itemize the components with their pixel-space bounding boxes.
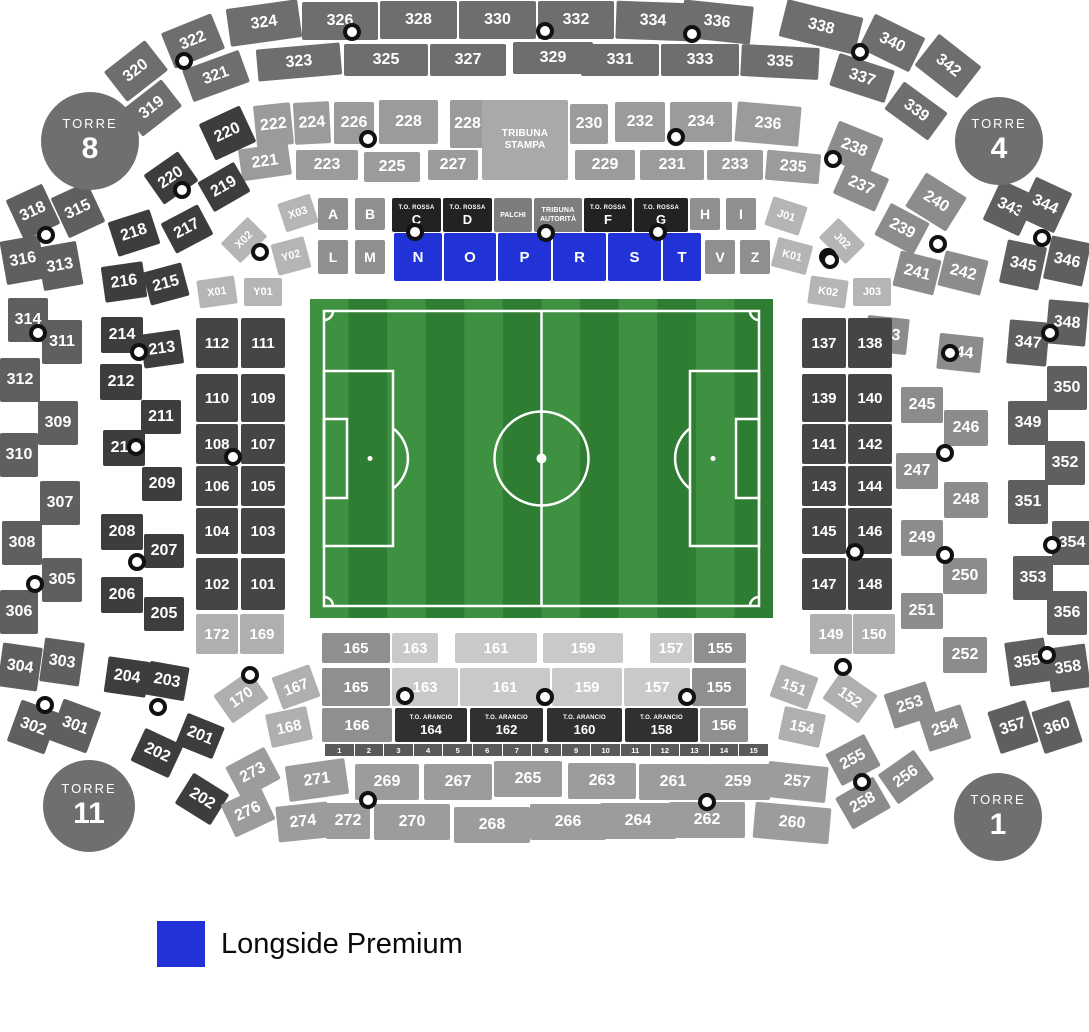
section-205: 205 — [144, 597, 184, 631]
section-202-label: 202 — [142, 740, 173, 766]
gate-marker — [821, 251, 839, 269]
section-y02: Y02 — [270, 236, 311, 276]
section-j01: J01 — [764, 196, 808, 236]
section-306: 306 — [0, 590, 38, 634]
section-211: 211 — [141, 400, 181, 434]
section-k02: K02 — [807, 275, 849, 308]
section-t-o-arancio-162-label: 162 — [496, 723, 518, 736]
section-228: 228 — [379, 100, 438, 144]
row-number-11: 11 — [621, 744, 650, 756]
section-139-label: 139 — [811, 391, 836, 406]
section-y02-label: Y02 — [280, 248, 302, 264]
section-209: 209 — [142, 467, 182, 501]
legend: Longside Premium — [157, 921, 463, 967]
gate-marker — [824, 150, 842, 168]
section-226-label: 226 — [341, 115, 368, 131]
section-212: 212 — [100, 364, 142, 400]
section-m: M — [355, 240, 385, 274]
row-number-4: 4 — [414, 744, 443, 756]
row-number-9: 9 — [562, 744, 591, 756]
section-211-label: 211 — [148, 409, 174, 425]
section-tribuna-stampa-sublabel: TRIBUNA — [502, 129, 548, 139]
section-274-label: 274 — [289, 813, 317, 832]
section-106: 106 — [196, 466, 238, 506]
section-201-label: 201 — [185, 724, 216, 749]
section-236: 236 — [734, 101, 801, 146]
section-169-label: 169 — [249, 627, 274, 642]
section-palchi-label: PALCHI — [500, 212, 526, 219]
section-303: 303 — [39, 637, 85, 686]
section-t-o-arancio-162-sublabel: T.O. ARANCIO — [485, 715, 528, 721]
gate-marker — [683, 25, 701, 43]
section-237: 237 — [833, 160, 890, 212]
section-147-label: 147 — [811, 577, 836, 592]
section-163-label: 163 — [402, 641, 427, 656]
section-229: 229 — [575, 150, 635, 180]
section-h-label: H — [700, 207, 710, 221]
section-269-label: 269 — [374, 774, 401, 790]
section-166-label: 166 — [344, 718, 369, 733]
section-328: 328 — [380, 1, 457, 39]
section-l-label: L — [329, 250, 338, 264]
section-146-label: 146 — [857, 524, 882, 539]
section-352: 352 — [1045, 441, 1085, 485]
section-325-label: 325 — [373, 52, 400, 68]
section-358-label: 358 — [1054, 658, 1083, 678]
section-t-o-rossa-c-sublabel: T.O. ROSSA — [398, 205, 434, 211]
section-207-label: 207 — [151, 543, 178, 559]
section-334-label: 334 — [639, 13, 666, 30]
torre-11-number: 11 — [73, 797, 105, 831]
section-k01: K01 — [771, 237, 814, 275]
gate-marker — [359, 791, 377, 809]
gate-marker — [936, 444, 954, 462]
section-342-label: 342 — [933, 51, 964, 80]
section-217: 217 — [160, 204, 213, 254]
section-251: 251 — [901, 593, 943, 629]
gate-marker — [149, 698, 167, 716]
section-224-label: 224 — [298, 114, 326, 131]
section-324: 324 — [226, 0, 303, 47]
section-142-label: 142 — [857, 437, 882, 452]
section-357-label: 357 — [998, 715, 1028, 738]
section-155: 155 — [694, 633, 746, 663]
section-328-label: 328 — [405, 12, 432, 28]
section-215: 215 — [142, 262, 189, 305]
section-228-2: 228 — [450, 100, 485, 148]
section-232: 232 — [615, 102, 665, 142]
section-264-label: 264 — [625, 813, 652, 829]
section-165-2: 165 — [322, 668, 390, 706]
section-309: 309 — [38, 401, 78, 445]
section-266: 266 — [530, 804, 606, 840]
section-352-label: 352 — [1052, 455, 1079, 471]
torre-4-word: TORRE — [971, 116, 1026, 131]
section-311: 311 — [42, 320, 82, 364]
torre-8-number: 8 — [82, 132, 99, 166]
section-172: 172 — [196, 614, 238, 654]
row-number-15: 15 — [739, 744, 768, 756]
gate-marker — [936, 546, 954, 564]
section-323-label: 323 — [285, 53, 313, 71]
section-319-label: 319 — [137, 93, 168, 122]
section-313-label: 313 — [45, 256, 74, 276]
section-261-label: 261 — [660, 774, 687, 790]
gate-marker — [1041, 324, 1059, 342]
section-267-label: 267 — [445, 774, 472, 790]
section-103: 103 — [241, 508, 285, 554]
section-165-label: 165 — [343, 641, 368, 656]
section-309-label: 309 — [45, 415, 72, 431]
section-157-2-label: 157 — [644, 680, 669, 695]
section-143-label: 143 — [811, 479, 836, 494]
row-number-3: 3 — [384, 744, 413, 756]
football-pitch — [310, 299, 773, 618]
section-l: L — [318, 240, 348, 274]
section-232-label: 232 — [627, 114, 654, 130]
section-141-label: 141 — [811, 437, 836, 452]
section-137: 137 — [802, 318, 846, 368]
section-225: 225 — [364, 152, 420, 182]
section-155-2: 155 — [692, 668, 746, 706]
torre-1-word: TORRE — [970, 792, 1025, 807]
section-313: 313 — [36, 241, 83, 291]
section-216-label: 216 — [110, 272, 139, 292]
section-318-label: 318 — [18, 199, 49, 225]
section-112-label: 112 — [205, 336, 229, 351]
section-329-label: 329 — [540, 50, 567, 66]
section-150-label: 150 — [861, 627, 886, 642]
section-y01-label: Y01 — [253, 287, 273, 298]
section-344-label: 344 — [1030, 192, 1061, 218]
section-204-label: 204 — [113, 667, 142, 687]
section-271: 271 — [285, 758, 349, 802]
section-242: 242 — [937, 250, 988, 296]
section-t[interactable]: T — [663, 233, 701, 281]
section-354-label: 354 — [1059, 535, 1086, 551]
section-346: 346 — [1043, 235, 1089, 286]
section-216: 216 — [101, 261, 148, 302]
section-265: 265 — [494, 761, 562, 797]
section-267: 267 — [424, 764, 492, 800]
section-a-label: A — [328, 207, 338, 221]
section-242-label: 242 — [948, 262, 978, 284]
section-o[interactable]: O — [444, 233, 496, 281]
section-268-label: 268 — [479, 817, 506, 833]
section-159: 159 — [543, 633, 623, 663]
section-246: 246 — [944, 410, 988, 446]
section-t-label: T — [677, 250, 686, 265]
section-312: 312 — [0, 358, 40, 402]
section-245: 245 — [901, 387, 943, 423]
section-t-o-arancio-160-label: 160 — [574, 723, 596, 736]
section-233-label: 233 — [722, 157, 749, 173]
section-157-label: 157 — [658, 641, 683, 656]
section-339: 339 — [884, 81, 948, 140]
section-256: 256 — [878, 750, 935, 805]
section-227: 227 — [428, 150, 478, 180]
section-237-label: 237 — [846, 173, 877, 198]
section-tribuna-autorit-label: AUTORITÀ — [540, 216, 576, 223]
section-v-label: V — [715, 250, 724, 264]
section-x01: X01 — [196, 275, 238, 308]
section-s[interactable]: S — [608, 233, 661, 281]
section-j01-label: J01 — [776, 208, 797, 224]
section-333: 333 — [661, 44, 739, 76]
gate-marker — [241, 666, 259, 684]
section-248: 248 — [944, 482, 988, 518]
section-276-label: 276 — [233, 799, 264, 825]
section-148: 148 — [848, 558, 892, 610]
section-301-label: 301 — [60, 714, 91, 738]
section-208-label: 208 — [109, 524, 136, 540]
section-165-2-label: 165 — [343, 680, 368, 695]
section-j03: J03 — [853, 278, 891, 306]
section-221: 221 — [238, 143, 292, 182]
section-159-2: 159 — [552, 668, 622, 706]
section-104-label: 104 — [204, 524, 229, 539]
section-142: 142 — [848, 424, 892, 464]
section-247-label: 247 — [904, 463, 931, 479]
section-305-label: 305 — [49, 572, 76, 588]
section-t-o-arancio-158-sublabel: T.O. ARANCIO — [640, 715, 683, 721]
section-336-label: 336 — [703, 13, 731, 32]
section-102-label: 102 — [204, 577, 229, 592]
section-223-label: 223 — [314, 157, 341, 173]
gate-marker — [127, 438, 145, 456]
section-207: 207 — [144, 534, 184, 568]
section-palchi: PALCHI — [494, 198, 532, 232]
section-239-label: 239 — [886, 216, 917, 243]
section-327: 327 — [430, 44, 506, 76]
section-166: 166 — [322, 708, 392, 742]
section-103-label: 103 — [250, 524, 275, 539]
section-350-label: 350 — [1054, 380, 1081, 396]
section-312-label: 312 — [7, 372, 34, 388]
row-number-13: 13 — [680, 744, 709, 756]
row-number-strip: 123456789101112131415 — [325, 744, 768, 756]
torre-8: TORRE8 — [41, 92, 139, 190]
section-214-label: 214 — [109, 327, 136, 343]
section-101: 101 — [241, 558, 285, 610]
section-236-label: 236 — [754, 115, 782, 133]
section-339-label: 339 — [900, 97, 931, 126]
gate-marker — [343, 23, 361, 41]
section-138: 138 — [848, 318, 892, 368]
section-152: 152 — [822, 670, 878, 723]
section-340-label: 340 — [876, 30, 907, 56]
section-306-label: 306 — [6, 604, 33, 620]
section-230-label: 230 — [576, 116, 603, 132]
section-268: 268 — [454, 807, 530, 843]
section-203: 203 — [144, 661, 189, 701]
section-262-label: 262 — [694, 812, 721, 828]
section-331: 331 — [581, 44, 659, 76]
section-106-label: 106 — [204, 479, 229, 494]
section-o-label: O — [464, 250, 476, 265]
section-221-label: 221 — [251, 152, 280, 172]
torre-1-number: 1 — [990, 808, 1007, 842]
stadium-seat-map: 3203223243263283303323343363383403423193… — [0, 0, 1089, 1032]
section-145: 145 — [802, 508, 846, 554]
section-351-label: 351 — [1015, 494, 1042, 510]
section-b-label: B — [365, 207, 375, 221]
section-301: 301 — [49, 698, 102, 753]
section-t-o-arancio-164: T.O. ARANCIO164 — [395, 708, 467, 742]
section-167: 167 — [271, 664, 320, 710]
section-z-label: Z — [751, 250, 760, 264]
section-351: 351 — [1008, 480, 1048, 524]
section-x01-label: X01 — [207, 285, 228, 299]
section-350: 350 — [1047, 366, 1087, 410]
section-257-label: 257 — [783, 773, 811, 792]
legend-color-swatch — [157, 921, 205, 967]
section-t-o-rossa-f: T.O. ROSSAF — [584, 198, 632, 232]
gate-marker — [1038, 646, 1056, 664]
section-212-label: 212 — [108, 374, 135, 390]
row-number-2: 2 — [355, 744, 384, 756]
section-335: 335 — [740, 44, 820, 80]
row-number-6: 6 — [473, 744, 502, 756]
section-315-label: 315 — [63, 197, 94, 223]
section-i-label: I — [739, 207, 743, 221]
section-321-label: 321 — [201, 64, 232, 88]
section-tribuna-stampa: TRIBUNASTAMPA — [482, 100, 568, 180]
section-316-label: 316 — [8, 250, 37, 270]
gate-marker — [130, 343, 148, 361]
section-b: B — [355, 198, 385, 230]
section-t-o-arancio-162: T.O. ARANCIO162 — [470, 708, 543, 742]
section-168: 168 — [265, 706, 313, 748]
section-225-label: 225 — [379, 159, 406, 175]
section-257: 257 — [765, 761, 828, 803]
section-308: 308 — [2, 521, 42, 565]
section-345: 345 — [999, 239, 1047, 290]
section-170-label: 170 — [226, 684, 255, 711]
section-x03: X03 — [277, 193, 319, 232]
section-202-2-label: 202 — [186, 785, 217, 813]
section-330: 330 — [459, 1, 536, 39]
section-238-label: 238 — [839, 136, 870, 161]
section-332-label: 332 — [563, 12, 590, 28]
section-208: 208 — [101, 514, 143, 550]
section-220-label: 220 — [212, 120, 243, 146]
section-333-label: 333 — [687, 52, 714, 68]
section-149: 149 — [810, 614, 852, 654]
gate-marker — [834, 658, 852, 676]
section-250-label: 250 — [952, 568, 979, 584]
section-261: 261 — [639, 764, 707, 800]
section-154-label: 154 — [788, 717, 816, 737]
section-234-label: 234 — [688, 114, 715, 130]
section-154: 154 — [778, 706, 826, 748]
section-260: 260 — [753, 802, 832, 844]
section-167-label: 167 — [282, 676, 311, 699]
section-105-label: 105 — [250, 479, 275, 494]
section-247: 247 — [896, 453, 938, 489]
gate-marker — [29, 324, 47, 342]
section-228-label: 228 — [395, 114, 422, 130]
section-258-label: 258 — [847, 789, 878, 816]
section-169: 169 — [240, 614, 284, 654]
section-249-label: 249 — [909, 530, 936, 546]
section-t-o-rossa-d: T.O. ROSSAD — [443, 198, 492, 232]
row-number-10: 10 — [591, 744, 620, 756]
section-342: 342 — [914, 34, 981, 99]
section-110: 110 — [196, 374, 238, 422]
section-263-label: 263 — [589, 773, 616, 789]
section-i: I — [726, 198, 756, 230]
torre-1: TORRE1 — [954, 773, 1042, 861]
section-304-label: 304 — [6, 657, 35, 677]
section-r[interactable]: R — [553, 233, 606, 281]
section-311-label: 311 — [49, 334, 75, 350]
gate-marker — [929, 235, 947, 253]
section-222: 222 — [253, 102, 294, 148]
section-v: V — [705, 240, 735, 274]
section-360: 360 — [1031, 700, 1083, 754]
section-330-label: 330 — [484, 12, 511, 28]
section-r-label: R — [574, 250, 585, 265]
section-156: 156 — [700, 708, 748, 742]
section-357: 357 — [987, 700, 1039, 754]
section-t-o-rossa-f-sublabel: T.O. ROSSA — [590, 205, 626, 211]
section-m-label: M — [364, 250, 376, 264]
gate-marker — [851, 43, 869, 61]
section-j02-label: J02 — [832, 231, 853, 252]
gate-marker — [1033, 229, 1051, 247]
section-t-o-arancio-160-sublabel: T.O. ARANCIO — [563, 715, 606, 721]
section-344: 344 — [1018, 177, 1073, 234]
row-number-12: 12 — [651, 744, 680, 756]
section-307-label: 307 — [47, 495, 74, 511]
section-266-label: 266 — [555, 814, 582, 830]
section-141: 141 — [802, 424, 846, 464]
section-159-label: 159 — [570, 641, 595, 656]
gate-marker — [36, 696, 54, 714]
section-145-label: 145 — [811, 524, 836, 539]
gate-marker — [537, 224, 555, 242]
section-345-label: 345 — [1008, 254, 1037, 275]
torre-8-word: TORRE — [62, 116, 117, 131]
torre-11-word: TORRE — [61, 781, 116, 796]
section-109: 109 — [241, 374, 285, 422]
section-222-label: 222 — [259, 116, 287, 135]
section-231-label: 231 — [659, 157, 686, 173]
section-101-label: 101 — [250, 577, 275, 592]
section-246-label: 246 — [953, 420, 980, 436]
section-307: 307 — [40, 481, 80, 525]
section-241: 241 — [892, 250, 941, 295]
section-t-o-rossa-d-label: D — [463, 213, 472, 226]
section-161: 161 — [455, 633, 537, 663]
section-x03-label: X03 — [287, 205, 309, 222]
gate-marker — [128, 553, 146, 571]
gate-marker — [396, 687, 414, 705]
row-number-5: 5 — [443, 744, 472, 756]
section-204: 204 — [104, 656, 151, 697]
section-224: 224 — [293, 101, 331, 145]
section-t-o-arancio-164-label: 164 — [420, 723, 442, 736]
section-305: 305 — [42, 558, 82, 602]
section-218: 218 — [108, 209, 161, 257]
section-220-2: 220 — [143, 151, 198, 205]
section-274: 274 — [275, 801, 330, 842]
section-165: 165 — [322, 633, 390, 663]
section-229-label: 229 — [592, 157, 619, 173]
section-112: 112 — [196, 318, 238, 368]
section-144-label: 144 — [857, 479, 882, 494]
